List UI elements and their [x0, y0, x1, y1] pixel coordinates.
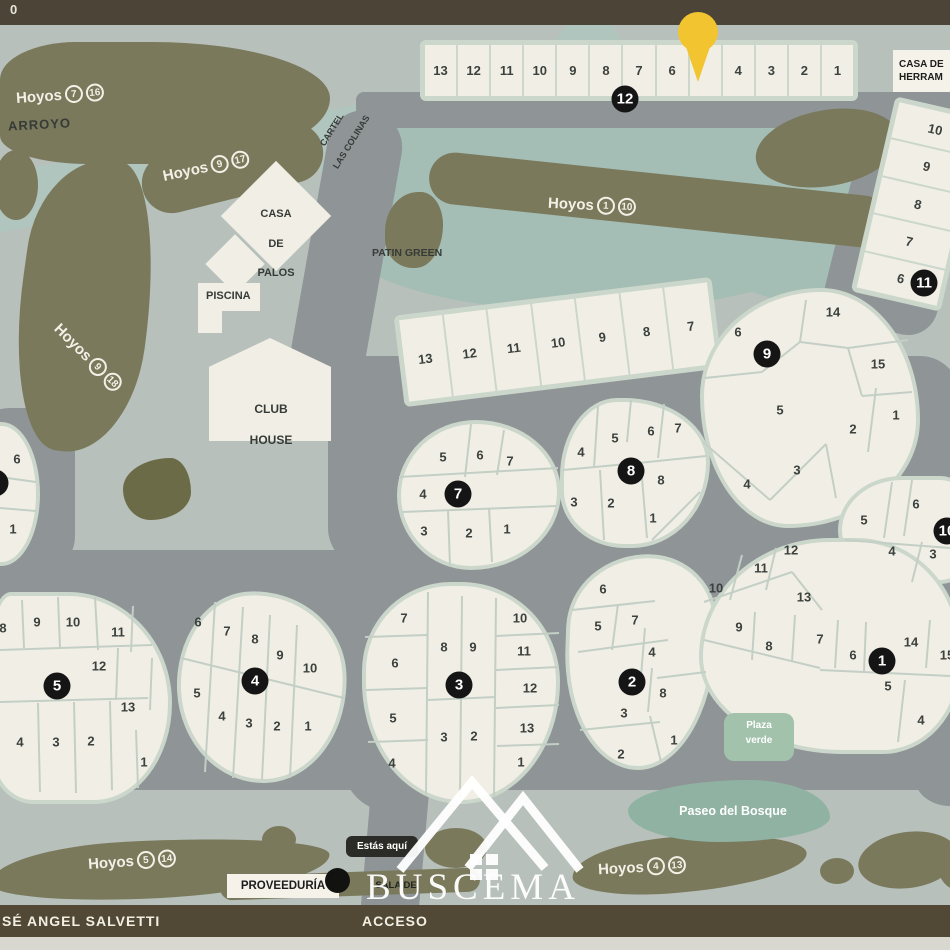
hole-number-circle: 5	[136, 850, 155, 869]
lot-number: 4	[888, 544, 895, 559]
lot-number: 6	[13, 452, 20, 467]
lot-number: 11	[111, 625, 125, 640]
lot-cell: 12	[443, 310, 495, 397]
lot-number: 3	[245, 716, 252, 731]
lot-number: 4	[218, 709, 225, 724]
lot-number: 4	[743, 477, 750, 492]
lot-number: 4	[419, 487, 426, 502]
lot-number: 6	[599, 582, 606, 597]
lot-number: 3	[620, 706, 627, 721]
block-number-badge: 2	[619, 669, 646, 696]
lot-cell: 11	[491, 45, 522, 96]
lot-number: 13	[797, 590, 811, 605]
lot-number: 3	[929, 547, 936, 562]
lot-number: 8	[251, 632, 258, 647]
lot-number: 1	[670, 733, 677, 748]
label-line: HOUSE	[226, 433, 316, 449]
estas-aqui-badge: Estás aquí	[346, 836, 418, 857]
casa-de-herramientas-box: CASA DE HERRAM	[893, 50, 950, 92]
lot-number: 5	[860, 513, 867, 528]
lot-number: 14	[904, 635, 918, 650]
label-line: CASA DE	[899, 58, 944, 71]
block-number-badge: 8	[618, 458, 645, 485]
lot-number: 7	[506, 454, 513, 469]
block-number-badge: 7	[445, 481, 472, 508]
lot-number: 9	[276, 648, 283, 663]
top-partial-text: 0	[10, 2, 17, 17]
label-line: PALOS	[240, 266, 312, 281]
lot-cell: 8	[620, 288, 672, 375]
lot-number: 2	[87, 734, 94, 749]
lot-number: 8	[765, 639, 772, 654]
vegetation	[820, 858, 854, 884]
hole-number-circle: 9	[209, 153, 230, 174]
lot-number: 7	[223, 624, 230, 639]
label-line: verde	[724, 733, 794, 748]
lot-number: 8	[440, 640, 447, 655]
lot-number: 6	[194, 615, 201, 630]
lot-cell: 3	[756, 45, 787, 96]
lot-number: 4	[917, 713, 924, 728]
lot-number: 6	[849, 648, 856, 663]
lot-number: 4	[16, 735, 23, 750]
lot-number: 9	[33, 615, 40, 630]
lot-number: 12	[784, 543, 798, 558]
lot-number: 5	[389, 711, 396, 726]
lot-number: 6	[476, 448, 483, 463]
lot-number: 7	[631, 613, 638, 628]
lot-number: 4	[388, 756, 395, 771]
lot-number: 2	[849, 422, 856, 437]
hole-number-circle: 14	[157, 849, 176, 868]
lot-number: 3	[52, 735, 59, 750]
label-plaza-verde: Plaza verde	[724, 718, 794, 748]
lot-number: 8	[657, 473, 664, 488]
lot-number: 13	[121, 700, 135, 715]
map-pin-icon	[685, 44, 711, 82]
lot-number: 7	[816, 632, 823, 647]
hole-number-circle: 1	[596, 196, 615, 215]
lot-number: 2	[607, 496, 614, 511]
lot-number: 15	[871, 357, 885, 372]
hole-number-circle: 7	[64, 84, 83, 103]
lot-cell: 4	[723, 45, 754, 96]
label-paseo-del-bosque: Paseo del Bosque	[648, 804, 818, 818]
block-number-badge: 12	[612, 86, 639, 113]
lot-number: 15	[940, 648, 950, 663]
lot-number: 4	[648, 645, 655, 660]
lot-number: 3	[570, 495, 577, 510]
label-line: SALA DE	[364, 880, 428, 892]
block-number-badge: 3	[446, 672, 473, 699]
lot-number: 1	[503, 522, 510, 537]
lot-number: 6	[391, 656, 398, 671]
lot-number: 5	[594, 619, 601, 634]
lot-number: 1	[304, 719, 311, 734]
lot-cell: 10	[524, 45, 555, 96]
lot-number: 5	[776, 403, 783, 418]
lot-number: 3	[793, 463, 800, 478]
lot-cell: 1	[822, 45, 853, 96]
lot-number: 10	[513, 611, 527, 626]
label-line: Plaza	[724, 718, 794, 733]
street-name-left: SÉ ANGEL SALVETTI	[2, 913, 160, 929]
hole-number-circle: 4	[646, 857, 665, 876]
top-border-bar: 0	[0, 0, 950, 25]
lot-number: 9	[735, 620, 742, 635]
lot-number: 5	[611, 431, 618, 446]
lot-number: 7	[674, 421, 681, 436]
block-number-badge: 1	[869, 648, 896, 675]
label-piscina: PISCINA	[206, 290, 251, 302]
lot-number: 1	[9, 522, 16, 537]
lot-number: 1	[140, 755, 147, 770]
hole-number-circle: 13	[667, 856, 686, 875]
lot-number: 2	[470, 729, 477, 744]
hole-number-circle: 10	[617, 197, 636, 216]
bottom-light-strip	[0, 937, 950, 950]
lot-number: 3	[420, 524, 427, 539]
hoyos-word: Hoyos	[548, 194, 595, 213]
lot-number: 10	[66, 615, 80, 630]
lot-number: 4	[577, 445, 584, 460]
lot-number: 12	[92, 659, 106, 674]
label-casa-de-palos: CASA DE PALOS	[240, 192, 312, 296]
hoyos-word: Hoyos	[598, 858, 645, 877]
lot-number: 11	[517, 644, 531, 659]
lot-cell: 13	[425, 45, 456, 96]
block-number-badge: 5	[44, 673, 71, 700]
label-line: CLUB	[226, 402, 316, 418]
vegetation	[262, 826, 296, 853]
lot-number: 9	[469, 640, 476, 655]
block-number-badge: 9	[754, 341, 781, 368]
label-line: CASA	[240, 207, 312, 222]
lot-number: 7	[400, 611, 407, 626]
lot-number: 5	[439, 450, 446, 465]
lot-cell: 12	[458, 45, 489, 96]
lot-number: 5	[884, 679, 891, 694]
hoyos-word: Hoyos	[16, 86, 63, 106]
lot-number: 8	[659, 686, 666, 701]
lot-number: 10	[709, 581, 723, 596]
lot-number: 6	[912, 497, 919, 512]
location-dot	[325, 868, 350, 893]
block-number-badge: 11	[911, 270, 938, 297]
lot-cell: 13	[399, 315, 451, 402]
vegetation	[123, 458, 191, 520]
lot-number: 2	[617, 747, 624, 762]
lot-cell: 11	[488, 304, 540, 391]
lot-number: 2	[465, 526, 472, 541]
lot-number: 2	[273, 719, 280, 734]
lot-cell: 9	[557, 45, 588, 96]
hole-number-circle: 16	[85, 83, 104, 102]
label-club-house: CLUB HOUSE	[226, 386, 316, 464]
lot-cell: 6	[657, 45, 688, 96]
lot-number: 5	[193, 686, 200, 701]
lot-number: 11	[754, 561, 768, 576]
lot-number: 1	[649, 511, 656, 526]
lot-number: 6	[734, 325, 741, 340]
label-line: DE	[240, 237, 312, 252]
lot-number: 3	[440, 730, 447, 745]
label-line: HERRAM	[899, 71, 943, 84]
street-name-acceso: ACCESO	[362, 913, 428, 929]
proveeduria-box: PROVEEDURÍA	[227, 874, 339, 898]
block-12-lot-row: 1312111098764321	[420, 40, 858, 101]
lot-cell: 2	[789, 45, 820, 96]
site-map: 131211109876432110987613121110987 614155…	[0, 0, 950, 950]
lot-number: 8	[0, 621, 7, 636]
lot-number: 14	[826, 305, 840, 320]
lot-number: 10	[303, 661, 317, 676]
label-patin-green: PATIN GREEN	[372, 247, 442, 259]
vegetation	[425, 828, 487, 868]
block-number-badge: 4	[242, 668, 269, 695]
lot-cell: 10	[532, 299, 584, 386]
lot-number: 1	[892, 408, 899, 423]
bottom-street-bar: SÉ ANGEL SALVETTI ACCESO	[0, 905, 950, 937]
hoyos-word: Hoyos	[88, 852, 135, 872]
hole-number-circle: 17	[229, 149, 250, 170]
lot-number: 12	[523, 681, 537, 696]
vegetation	[855, 825, 950, 894]
lot-number: 1	[517, 755, 524, 770]
lot-cell: 9	[576, 293, 628, 380]
lot-number: 6	[647, 424, 654, 439]
lot-number: 13	[520, 721, 534, 736]
